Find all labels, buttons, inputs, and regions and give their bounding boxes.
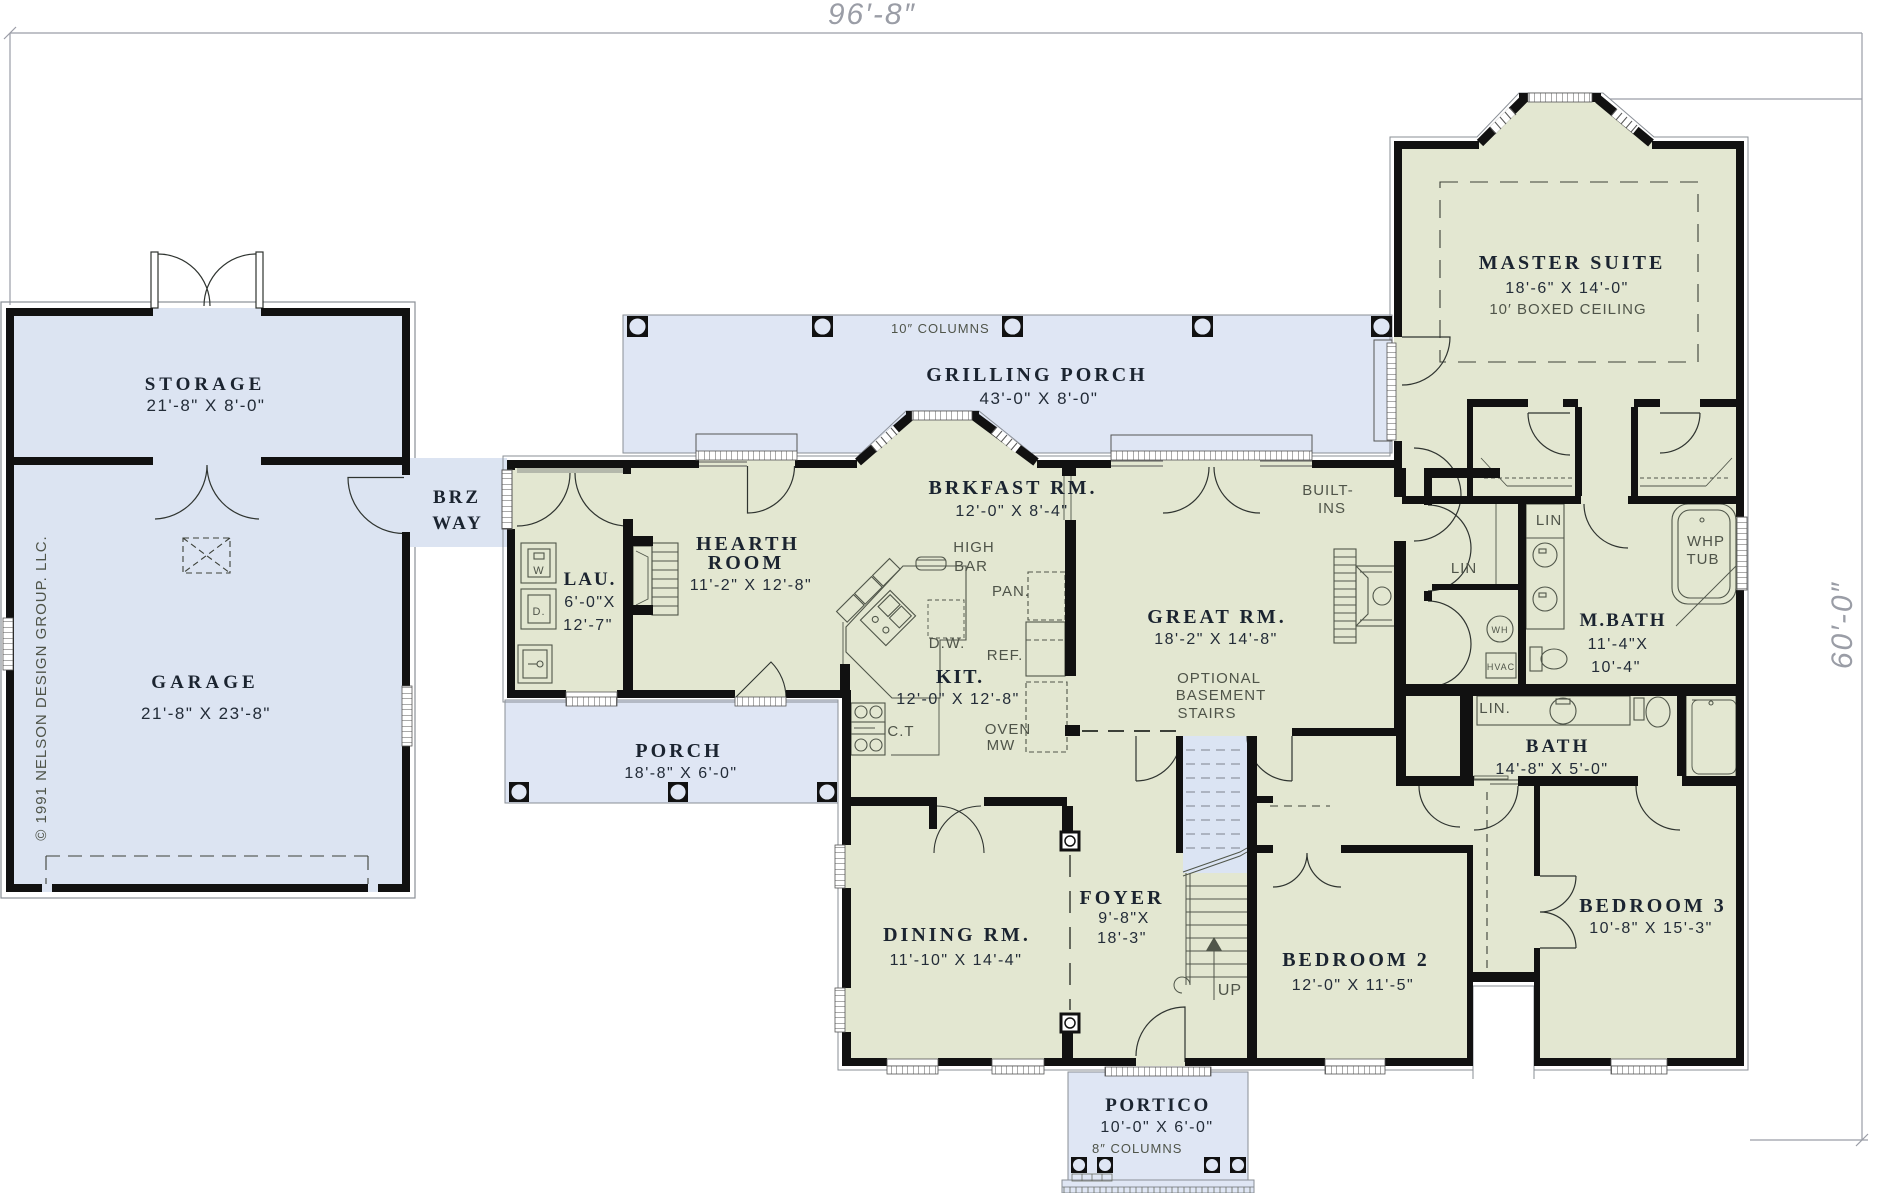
svg-text:6'-0"X: 6'-0"X xyxy=(564,594,616,611)
svg-text:LIN: LIN xyxy=(1536,512,1562,529)
svg-text:10'-0" X 6'-0": 10'-0" X 6'-0" xyxy=(1100,1119,1213,1136)
svg-text:12'-0" X 11'-5": 12'-0" X 11'-5" xyxy=(1292,977,1414,994)
svg-text:WHP: WHP xyxy=(1687,533,1725,550)
svg-text:PORCH: PORCH xyxy=(635,740,722,762)
svg-text:10'-4": 10'-4" xyxy=(1591,659,1641,676)
svg-text:BASEMENT: BASEMENT xyxy=(1176,687,1267,704)
svg-text:10″ COLUMNS: 10″ COLUMNS xyxy=(891,321,990,336)
svg-text:D.: D. xyxy=(533,606,546,618)
svg-text:9'-8"X: 9'-8"X xyxy=(1098,910,1150,927)
svg-text:REF.: REF. xyxy=(987,647,1024,664)
svg-text:GARAGE: GARAGE xyxy=(151,672,258,693)
svg-text:12'-0" X 8'-4": 12'-0" X 8'-4" xyxy=(955,503,1068,520)
svg-text:KIT.: KIT. xyxy=(936,666,984,688)
svg-text:BEDROOM 2: BEDROOM 2 xyxy=(1282,949,1430,971)
svg-text:TUB: TUB xyxy=(1687,551,1720,568)
svg-text:OVEN: OVEN xyxy=(985,721,1032,738)
svg-text:21'-8" X 8'-0": 21'-8" X 8'-0" xyxy=(147,396,266,415)
svg-text:BEDROOM 3: BEDROOM 3 xyxy=(1579,895,1727,917)
svg-text:18'-2" X 14'-8": 18'-2" X 14'-8" xyxy=(1154,631,1278,648)
svg-text:18'-3": 18'-3" xyxy=(1097,930,1147,947)
svg-text:21'-8" X 23'-8": 21'-8" X 23'-8" xyxy=(141,704,271,723)
svg-text:DINING RM.: DINING RM. xyxy=(883,924,1031,946)
svg-text:INS: INS xyxy=(1318,500,1346,517)
svg-text:HVAC: HVAC xyxy=(1487,662,1515,672)
svg-text:18'-6" X 14'-0": 18'-6" X 14'-0" xyxy=(1505,280,1629,297)
svg-text:11'-4"X: 11'-4"X xyxy=(1588,636,1649,653)
svg-text:W: W xyxy=(533,565,544,577)
svg-text:12'-0" X 12'-8": 12'-0" X 12'-8" xyxy=(896,691,1020,708)
svg-text:BRKFAST RM.: BRKFAST RM. xyxy=(929,477,1098,499)
svg-text:BUILT-: BUILT- xyxy=(1302,482,1354,499)
svg-text:OPTIONAL: OPTIONAL xyxy=(1177,670,1261,687)
svg-text:FOYER: FOYER xyxy=(1080,887,1165,909)
svg-text:GREAT RM.: GREAT RM. xyxy=(1147,606,1287,628)
svg-text:BRZ: BRZ xyxy=(433,487,481,508)
svg-text:© 1991 NELSON DESIGN GROUP. LL: © 1991 NELSON DESIGN GROUP. LLC. xyxy=(33,535,50,840)
svg-text:WH: WH xyxy=(1492,625,1509,635)
svg-text:14'-8" X 5'-0": 14'-8" X 5'-0" xyxy=(1495,761,1608,778)
svg-text:WAY: WAY xyxy=(432,513,484,534)
svg-text:12'-7": 12'-7" xyxy=(563,617,613,634)
svg-text:MASTER SUITE: MASTER SUITE xyxy=(1479,252,1666,274)
svg-text:10'-8" X 15'-3": 10'-8" X 15'-3" xyxy=(1589,920,1713,937)
svg-text:C.T: C.T xyxy=(887,723,914,740)
svg-text:D.W.: D.W. xyxy=(929,635,966,652)
svg-text:43'-0" X 8'-0": 43'-0" X 8'-0" xyxy=(980,389,1099,408)
svg-text:STAIRS: STAIRS xyxy=(1177,705,1236,722)
svg-text:96′-8″: 96′-8″ xyxy=(828,0,916,31)
svg-text:STORAGE: STORAGE xyxy=(145,374,266,395)
svg-text:PORTICO: PORTICO xyxy=(1105,1095,1211,1116)
svg-text:BAR: BAR xyxy=(954,558,988,575)
svg-text:8″ COLUMNS: 8″ COLUMNS xyxy=(1092,1141,1182,1156)
svg-text:LIN: LIN xyxy=(1451,560,1477,577)
svg-text:M.BATH: M.BATH xyxy=(1579,610,1666,631)
svg-text:ROOM: ROOM xyxy=(708,552,784,574)
svg-text:11'-2" X 12'-8": 11'-2" X 12'-8" xyxy=(690,577,812,594)
svg-text:10′ BOXED CEILING: 10′ BOXED CEILING xyxy=(1489,301,1646,318)
svg-text:MW: MW xyxy=(987,737,1016,754)
svg-text:11'-10" X 14'-4": 11'-10" X 14'-4" xyxy=(890,952,1023,969)
svg-text:BATH: BATH xyxy=(1526,736,1590,757)
svg-text:HIGH: HIGH xyxy=(953,539,995,556)
svg-text:PAN.: PAN. xyxy=(992,583,1030,600)
svg-text:LAU.: LAU. xyxy=(564,569,617,590)
svg-text:18'-8" X 6'-0": 18'-8" X 6'-0" xyxy=(624,765,737,782)
svg-text:UP: UP xyxy=(1218,982,1242,999)
svg-text:60′-0″: 60′-0″ xyxy=(1826,581,1859,669)
svg-text:GRILLING PORCH: GRILLING PORCH xyxy=(926,364,1147,386)
svg-text:LIN.: LIN. xyxy=(1479,700,1511,717)
